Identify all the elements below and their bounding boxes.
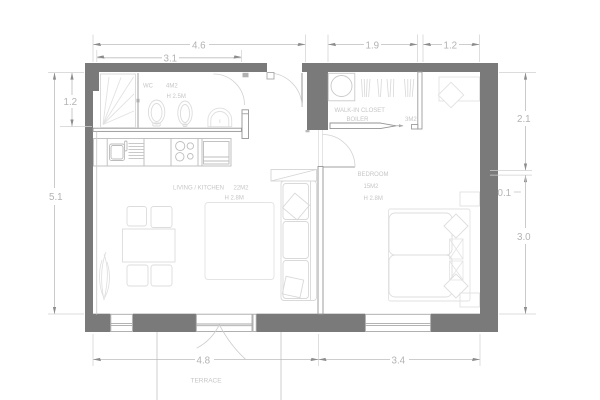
svg-text:TERRACE: TERRACE [191,378,223,385]
svg-text:H 2.8M: H 2.8M [364,196,383,202]
svg-text:WC: WC [143,84,154,90]
svg-text:LIVING / KITCHEN: LIVING / KITCHEN [173,186,224,192]
svg-text:15M2: 15M2 [364,184,380,190]
svg-text:4.8: 4.8 [197,356,211,367]
svg-text:H 2.8M: H 2.8M [225,196,244,202]
svg-text:4.6: 4.6 [192,41,206,52]
svg-text:2.1: 2.1 [517,114,531,125]
svg-text:3.0: 3.0 [517,232,531,243]
svg-text:1.2: 1.2 [444,41,458,52]
svg-text:5.1: 5.1 [49,192,63,203]
svg-text:1.2: 1.2 [64,97,78,108]
svg-text:1.9: 1.9 [366,41,380,52]
svg-text:BOILER: BOILER [347,117,370,123]
svg-text:BEDROOM: BEDROOM [358,172,389,178]
svg-text:3.4: 3.4 [392,356,406,367]
svg-text:WALK-IN CLOSET: WALK-IN CLOSET [335,108,386,114]
svg-text:H 2.5M: H 2.5M [167,94,186,100]
svg-text:3M2: 3M2 [405,117,417,123]
svg-text:0.1: 0.1 [498,188,512,199]
svg-text:3.1: 3.1 [164,54,178,65]
svg-text:4M2: 4M2 [166,84,178,90]
svg-text:22M2: 22M2 [234,186,250,192]
